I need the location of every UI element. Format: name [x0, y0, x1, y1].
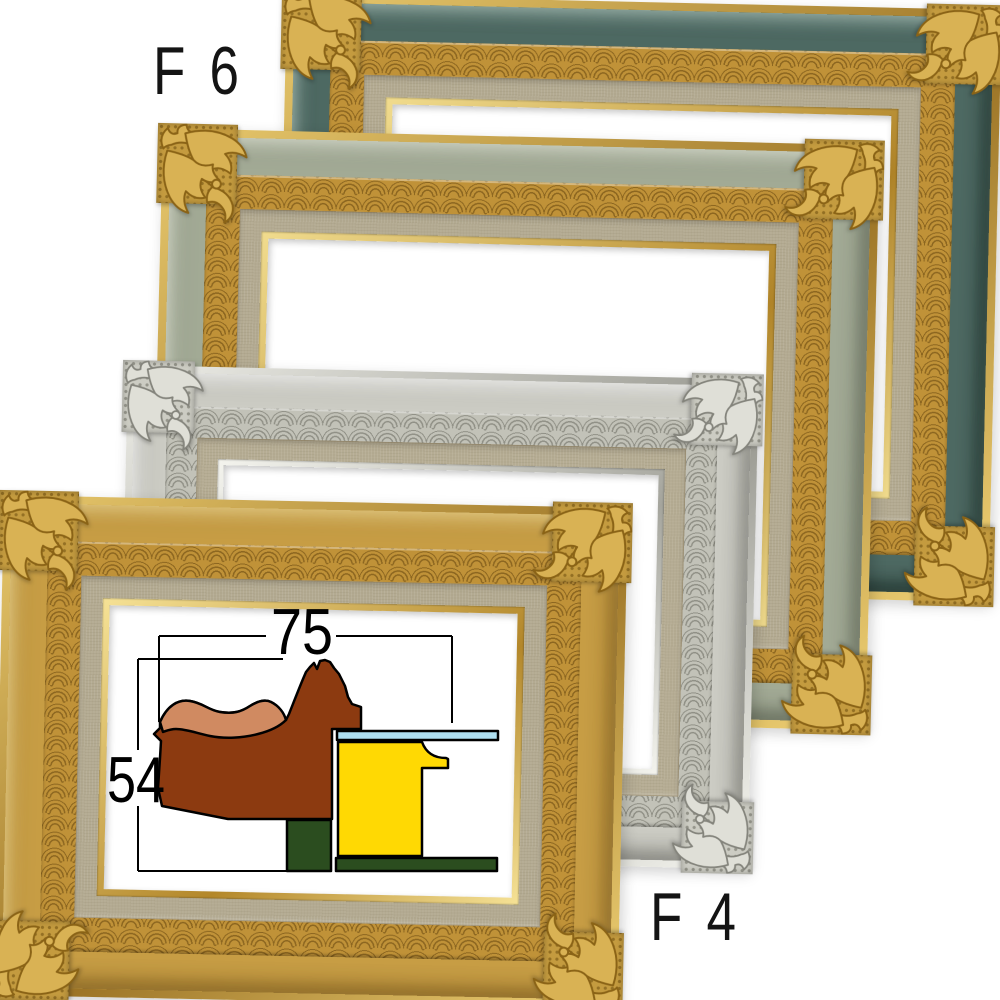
frame-carved-band	[39, 541, 581, 962]
frame-gold-front	[0, 495, 628, 1000]
corner-ornament	[520, 909, 624, 1000]
corner-ornament	[891, 503, 995, 607]
product-photo: 75 54 F 6 F 4	[0, 0, 1000, 1000]
corner-ornament	[670, 372, 764, 466]
frame-inner-lip	[97, 598, 525, 905]
corner-ornament	[121, 360, 215, 454]
frame-opening	[104, 605, 518, 897]
corner-ornament	[768, 631, 872, 735]
corner-ornament	[0, 490, 101, 594]
corner-ornament	[0, 898, 93, 1000]
corner-ornament	[280, 0, 384, 93]
frame-linen-liner	[74, 576, 547, 928]
corner-ornament	[780, 138, 884, 242]
label-f6: F 6	[153, 36, 239, 107]
corner-ornament	[903, 3, 1000, 107]
corner-ornament	[529, 501, 633, 605]
label-f4: F 4	[650, 882, 736, 953]
corner-ornament	[661, 780, 755, 874]
corner-ornament	[156, 123, 260, 227]
